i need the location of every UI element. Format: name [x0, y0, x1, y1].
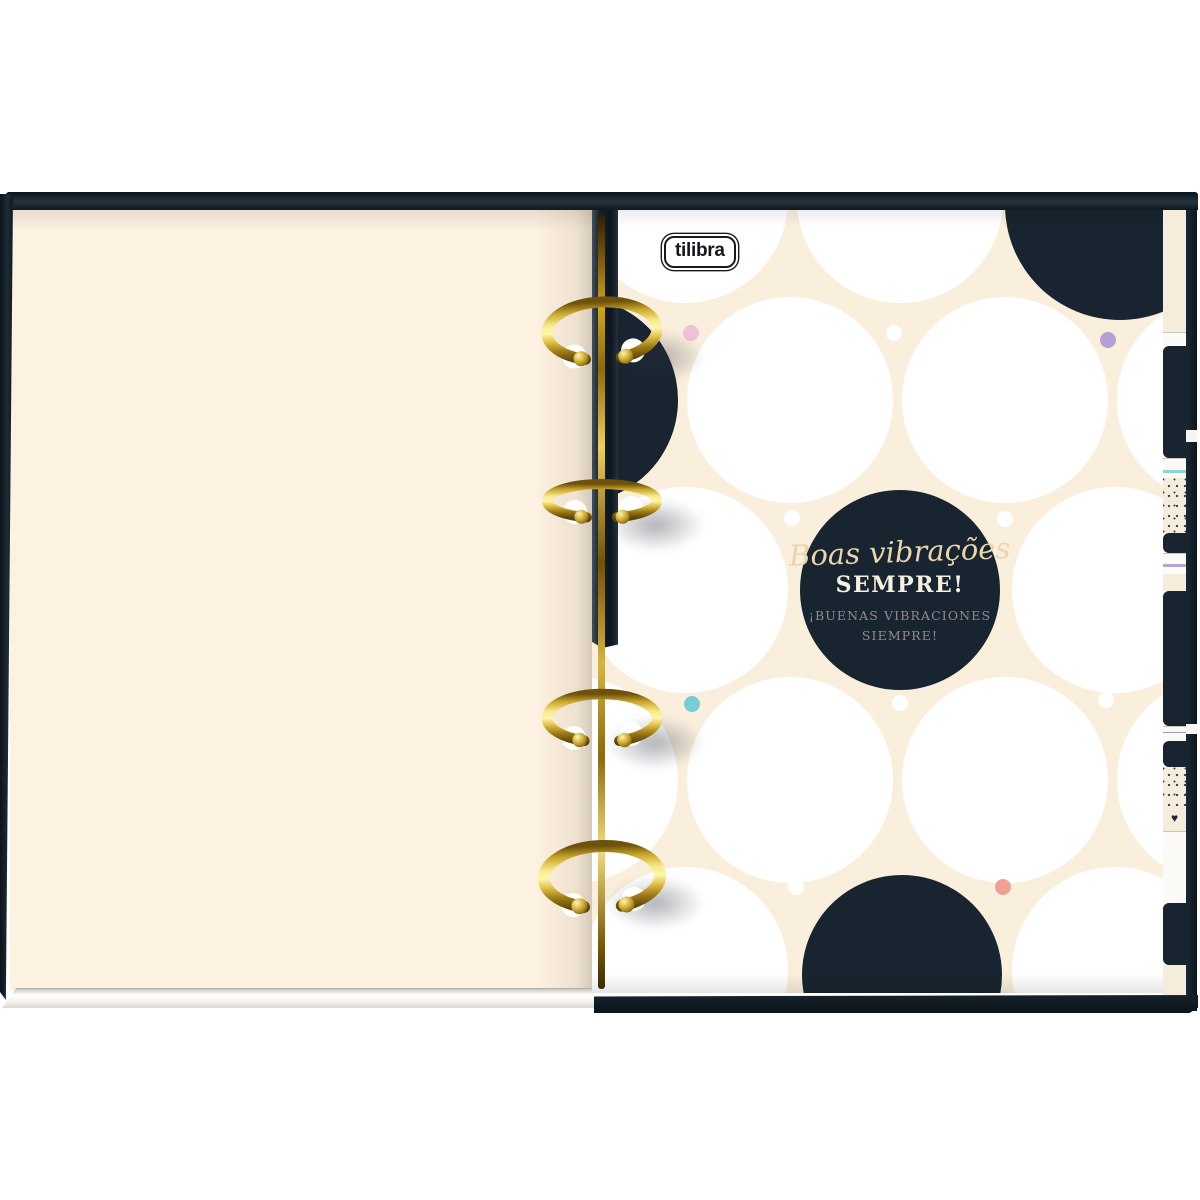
message-script-line: Boas vibrações: [789, 531, 1011, 573]
binder-ring-3: [527, 663, 677, 773]
message-emphasis-line: SEMPRE!: [836, 572, 965, 598]
tab-segment: [1163, 478, 1186, 533]
tab-notch: [1186, 724, 1197, 734]
tab-segment: [1163, 767, 1186, 806]
binder-cover-bottom-edge: [594, 995, 1198, 1013]
message-circle: Boas vibrações SEMPRE! ¡BUENAS VIBRACION…: [800, 490, 1000, 690]
tab-segment: [1163, 726, 1186, 741]
accent-dot-coral: [995, 879, 1011, 895]
accent-dot-teal: [684, 696, 700, 712]
tab-teal-line: [1163, 470, 1186, 473]
accent-dot-white: [784, 510, 800, 526]
tab-segment: [1163, 533, 1186, 553]
binder-cover-top-edge: [6, 192, 1198, 210]
accent-dot-white: [1098, 692, 1114, 708]
binder-ring-2: [527, 446, 677, 556]
accent-dot-purple: [1100, 332, 1116, 348]
tab-segment: [1163, 965, 1186, 996]
spine-gutter: [592, 208, 618, 648]
white-circle: [1117, 297, 1163, 503]
accent-dot-white: [886, 325, 902, 341]
message-subtitle-line1: ¡BUENAS VIBRACIONES: [809, 608, 991, 623]
white-circle: [1117, 677, 1163, 883]
white-circle: [687, 677, 893, 883]
white-circle: [797, 208, 1003, 303]
tab-hairline: [1163, 732, 1186, 733]
tab-segment: [1163, 591, 1186, 726]
tab-segment: [1163, 332, 1186, 346]
white-circle: [902, 297, 1108, 503]
message-subtitle-line2: SIEMPRE!: [862, 628, 938, 643]
tab-segment: [1163, 346, 1186, 458]
accent-dot-white: [788, 879, 804, 895]
tab-segment: [1163, 741, 1186, 767]
page-stack-edge: [2, 988, 594, 1008]
white-circle: [902, 677, 1108, 883]
white-circle: [687, 297, 893, 503]
binder-ring-1: [524, 272, 680, 390]
navy-circle: [802, 875, 1002, 993]
heart-icon: ♥: [1163, 812, 1186, 824]
tab-divider-stack: ♥: [1160, 204, 1200, 1012]
tab-segment: [1163, 831, 1186, 903]
tab-notch: [1186, 430, 1197, 442]
cover-right-edge: [1186, 204, 1197, 1011]
white-circle: [1012, 487, 1163, 693]
accent-dot-white: [997, 511, 1013, 527]
message-subtitle: ¡BUENAS VIBRACIONES SIEMPRE!: [809, 606, 991, 645]
tab-segment: [1163, 903, 1186, 965]
tab-segment: [1163, 208, 1186, 332]
binder-ring-4: [525, 819, 679, 934]
accent-dot-white: [892, 695, 908, 711]
brand-logo: tilibra: [664, 236, 736, 268]
tab-segment: [1163, 458, 1186, 478]
left-page: [10, 207, 594, 990]
white-circle: [1012, 867, 1163, 993]
tab-purple-line: [1163, 564, 1186, 567]
binder-product-photo: tilibra Boas vibrações SEMPRE! ¡BUENAS V…: [0, 0, 1200, 1200]
brand-logo-text: tilibra: [675, 240, 725, 261]
tab-segment: [1163, 574, 1186, 591]
